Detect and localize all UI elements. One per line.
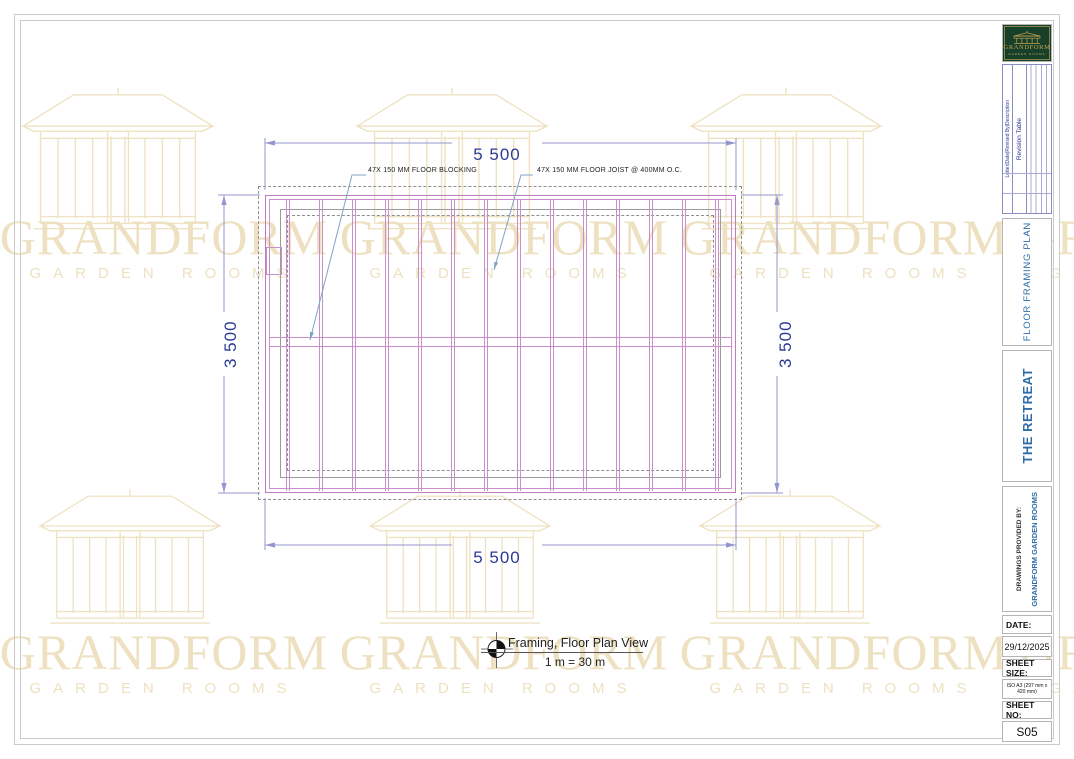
floor-framing-plan-drawing xyxy=(258,186,742,500)
watermark-sub: GARDEN ROOMS xyxy=(1049,265,1074,282)
watermark-sub: GARDEN ROOMS xyxy=(709,265,978,282)
watermark-sub: GARDEN ROOMS xyxy=(29,680,298,697)
provided-by-value: GRANDFORM GARDEN ROOMS xyxy=(1030,492,1039,607)
logo-sub-text: GARDEN ROOMS xyxy=(1008,53,1045,56)
view-title-underline xyxy=(481,652,643,653)
annotation-floor-blocking: 47X 150 MM FLOOR BLOCKING xyxy=(368,167,477,174)
sheet-size-label: SHEET SIZE: xyxy=(1002,659,1052,677)
dimension-height-right: 3 500 xyxy=(776,312,796,376)
project-title-box: THE RETREAT xyxy=(1002,350,1052,482)
sheet-no-value: S05 xyxy=(1002,721,1052,742)
annotation-floor-joist: 47X 150 MM FLOOR JOIST @ 400MM O.C. xyxy=(537,167,682,174)
plan-title-box: FLOOR FRAMING PLAN xyxy=(1002,218,1052,346)
view-title: Framing, Floor Plan View xyxy=(508,636,648,650)
drawing-sheet: GRANDFORMGARDEN ROOMS GRANDFORMGARDEN RO… xyxy=(0,0,1074,759)
plan-title: FLOOR FRAMING PLAN xyxy=(1022,222,1033,341)
watermark-brand: GRANDFORM xyxy=(0,627,328,677)
watermark-sub: GARDEN ROOMS xyxy=(709,680,978,697)
dimension-width-bottom: 5 500 xyxy=(448,548,546,568)
view-scale: 1 m = 30 m xyxy=(508,655,642,669)
provided-by-label: DRAWINGS PROVIDED BY: xyxy=(1016,507,1023,591)
date-value: 29/12/2025 xyxy=(1002,636,1052,657)
date-label: DATE: xyxy=(1002,615,1052,634)
dimension-height-left: 3 500 xyxy=(221,312,241,376)
revision-table-title: Revision Table xyxy=(1012,65,1027,213)
garden-room-watermark-icon xyxy=(690,488,890,628)
logo-building-icon xyxy=(1007,30,1047,45)
project-title: THE RETREAT xyxy=(1020,368,1035,464)
garden-room-watermark-icon xyxy=(30,488,230,628)
sheet-no-label: SHEET NO: xyxy=(1002,701,1052,719)
company-logo: GRANDFORM GARDEN ROOMS xyxy=(1002,24,1052,62)
provided-by-box: DRAWINGS PROVIDED BY: GRANDFORM GARDEN R… xyxy=(1002,486,1052,612)
rim-detail xyxy=(266,247,282,275)
watermark-sub: GARDEN ROOMS xyxy=(369,680,638,697)
logo-brand-text: GRANDFORM xyxy=(1004,45,1051,52)
watermark-brand: GRANDFORM xyxy=(680,627,1009,677)
floor-blocking-row xyxy=(269,337,732,347)
garden-room-watermark-icon xyxy=(18,86,218,234)
revision-table-columns xyxy=(1026,65,1051,213)
dimension-width-top: 5 500 xyxy=(448,145,546,165)
revision-table: Letter|Date|Revised By|Description Revis… xyxy=(1002,64,1052,214)
watermark-sub: GARDEN ROOMS xyxy=(1049,680,1074,697)
sheet-size-value: ISO A3 (297 mm x 420 mm) xyxy=(1002,679,1052,699)
